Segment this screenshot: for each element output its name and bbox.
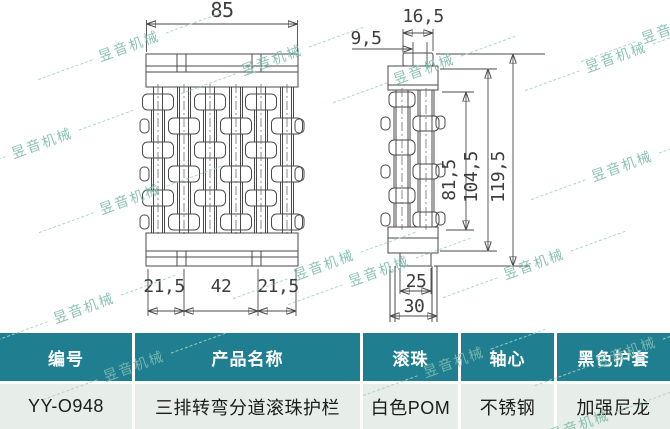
technical-drawing: 85 xyxy=(0,0,670,333)
page: 85 xyxy=(0,0,670,429)
dim-cap-offset-label: 9,5 xyxy=(350,28,381,49)
table-header-ball: 滚珠 xyxy=(363,333,458,381)
dim-height-mid-label: 104,5 xyxy=(461,151,482,203)
table-cell-ball: 白色POM xyxy=(363,384,458,429)
table-cell-product-name: 三排转弯分道滚珠护栏 xyxy=(135,384,360,429)
table-cell-sheath: 加强尼龙 xyxy=(557,384,670,429)
dim-bottom-left-label: 21,5 xyxy=(143,276,184,297)
spec-table: 编号 产品名称 滚珠 轴心 黑色护套 YY-O948 三排转弯分道滚珠护栏 白色… xyxy=(0,333,670,429)
dim-height-total-label: 119,5 xyxy=(488,151,509,203)
dim-foot-outer-label: 30 xyxy=(404,296,425,317)
dim-cap-width-label: 16,5 xyxy=(402,6,443,27)
dim-width-label: 85 xyxy=(210,0,233,22)
table-header-product-name: 产品名称 xyxy=(135,333,360,381)
table-cell-code: YY-O948 xyxy=(0,384,132,429)
table-header-axle: 轴心 xyxy=(461,333,554,381)
dim-bottom-center-label: 42 xyxy=(211,276,232,297)
dim-height-inner-label: 81,5 xyxy=(439,159,460,200)
table-header-code: 编号 xyxy=(0,333,132,381)
dim-bottom-right-label: 21,5 xyxy=(257,276,298,297)
table-header-sheath: 黑色护套 xyxy=(557,333,670,381)
table-cell-axle: 不锈钢 xyxy=(461,384,554,429)
side-view-drawing: 16,5 9,5 xyxy=(350,6,545,322)
dim-foot-inner-label: 25 xyxy=(406,271,427,292)
front-view-drawing: 85 xyxy=(140,0,304,316)
